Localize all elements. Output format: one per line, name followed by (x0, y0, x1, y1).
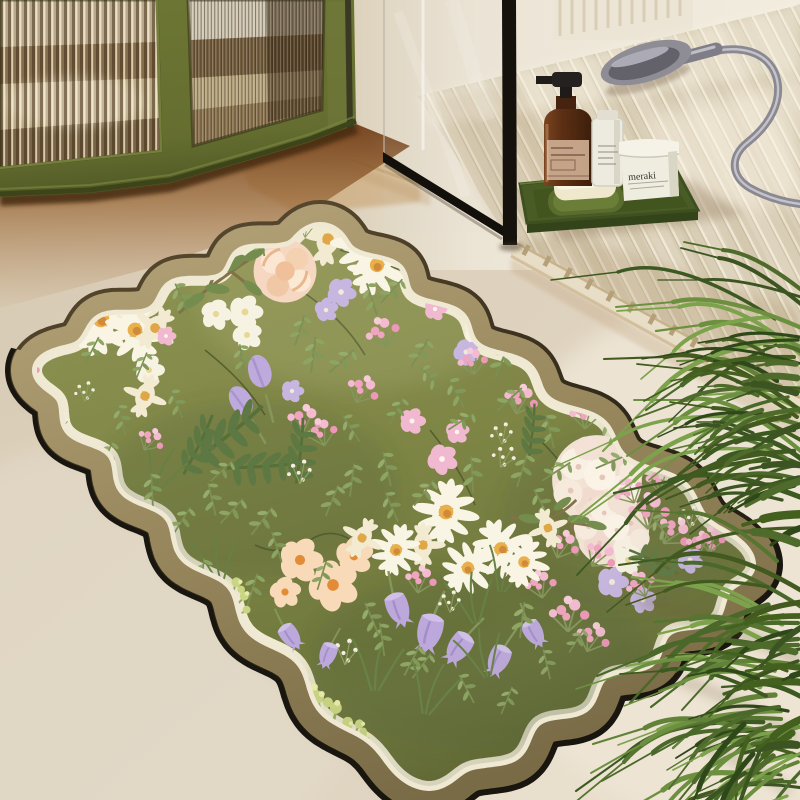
svg-text:meraki: meraki (628, 170, 657, 183)
